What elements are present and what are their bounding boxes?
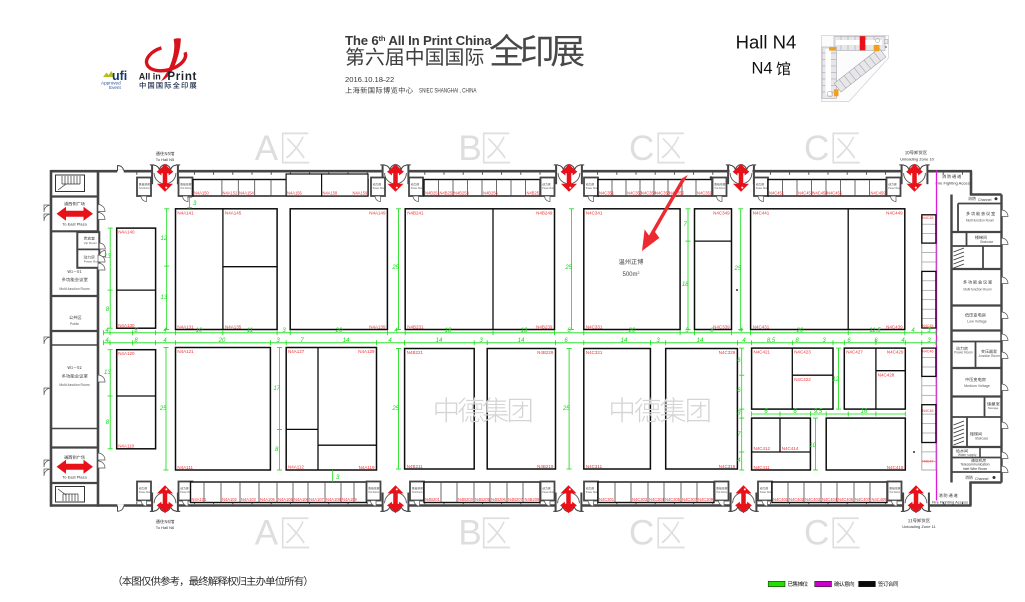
svg-text:N4B239: N4B239 bbox=[536, 324, 553, 329]
svg-text:N4C403: N4C403 bbox=[805, 497, 821, 502]
svg-text:Tick Room: Tick Room bbox=[714, 188, 725, 190]
svg-text:11.5: 11.5 bbox=[869, 328, 881, 334]
svg-text:N4C359: N4C359 bbox=[697, 191, 713, 196]
svg-text:13: 13 bbox=[104, 370, 111, 376]
svg-text:N4A152: N4A152 bbox=[223, 191, 239, 196]
svg-text:Multi-function Room: Multi-function Room bbox=[966, 219, 995, 223]
svg-text:N4A105: N4A105 bbox=[260, 497, 276, 502]
svg-text:Water supply: Water supply bbox=[958, 453, 977, 457]
svg-text:Power Room: Power Room bbox=[888, 187, 901, 190]
svg-text:N4C454: N4C454 bbox=[813, 191, 829, 196]
svg-text:A: A bbox=[255, 129, 279, 168]
svg-text:N4A121: N4A121 bbox=[177, 349, 194, 354]
svg-text:N4A140: N4A140 bbox=[118, 229, 135, 234]
svg-text:Fire Fighting Access: Fire Fighting Access bbox=[935, 181, 971, 186]
svg-text:N4C331: N4C331 bbox=[586, 324, 603, 329]
svg-text:6: 6 bbox=[737, 358, 741, 364]
svg-text:N4C46: N4C46 bbox=[922, 409, 933, 413]
svg-text:Power Room: Power Room bbox=[586, 187, 599, 190]
svg-text:Tick Room: Tick Room bbox=[368, 492, 379, 494]
svg-text:To Hall N6: To Hall N6 bbox=[156, 525, 175, 530]
svg-text:Inlet Wire Room: Inlet Wire Room bbox=[963, 467, 987, 471]
svg-text:N4B256: N4B256 bbox=[483, 191, 499, 196]
svg-text:All in: All in bbox=[139, 71, 161, 81]
svg-text:N4A103: N4A103 bbox=[241, 497, 257, 502]
svg-text:16: 16 bbox=[861, 409, 868, 415]
svg-text:N4B241: N4B241 bbox=[407, 210, 424, 215]
svg-text:Power Room: Power Room bbox=[586, 491, 599, 494]
svg-text:N4A145: N4A145 bbox=[225, 210, 242, 215]
svg-text:Staircase: Staircase bbox=[980, 240, 994, 244]
svg-text:N4B205: N4B205 bbox=[475, 497, 491, 502]
svg-text:Public: Public bbox=[70, 322, 79, 326]
svg-text:25: 25 bbox=[391, 265, 399, 271]
svg-text:N4A135: N4A135 bbox=[225, 324, 242, 329]
svg-text:3: 3 bbox=[336, 475, 340, 481]
svg-text:N4A149: N4A149 bbox=[369, 210, 386, 215]
svg-text:Tick Room: Tick Room bbox=[889, 492, 900, 494]
svg-text:2016.10.18: 2016.10.18 bbox=[345, 75, 383, 84]
svg-text:B: B bbox=[458, 513, 481, 552]
svg-text:25: 25 bbox=[734, 266, 742, 272]
svg-text:N4C45: N4C45 bbox=[922, 216, 933, 220]
svg-text:N4C402: N4C402 bbox=[789, 497, 805, 502]
svg-text:SNIEC SHANGHAI , CHINA: SNIEC SHANGHAI , CHINA bbox=[419, 87, 477, 94]
svg-text:Print: Print bbox=[167, 71, 197, 83]
svg-text:N4B206: N4B206 bbox=[491, 497, 507, 502]
svg-text:A: A bbox=[255, 513, 279, 552]
svg-text:N4A105: N4A105 bbox=[278, 497, 294, 502]
svg-text:13: 13 bbox=[521, 328, 528, 334]
svg-text:Power Room: Power Room bbox=[542, 187, 555, 190]
svg-text:N4A127: N4A127 bbox=[288, 349, 305, 354]
svg-text:6: 6 bbox=[737, 388, 741, 394]
svg-text:9.5: 9.5 bbox=[814, 409, 823, 415]
svg-text:C: C bbox=[629, 513, 654, 552]
svg-text:C: C bbox=[629, 129, 654, 168]
svg-text:N4C301: N4C301 bbox=[599, 497, 615, 502]
svg-text:13: 13 bbox=[161, 295, 168, 301]
svg-text:N4C423: N4C423 bbox=[794, 350, 811, 355]
svg-text:N4C459: N4C459 bbox=[871, 191, 887, 196]
svg-text:20: 20 bbox=[335, 328, 343, 334]
svg-text:N4C329: N4C329 bbox=[719, 350, 736, 355]
svg-text:N4C412: N4C412 bbox=[754, 446, 771, 451]
svg-text:N4C46: N4C46 bbox=[922, 349, 933, 353]
svg-text:Event: Event bbox=[109, 85, 121, 90]
svg-text:B: B bbox=[458, 129, 481, 168]
svg-text:N4C349: N4C349 bbox=[713, 210, 730, 215]
svg-text:To East Plaza: To East Plaza bbox=[62, 475, 87, 480]
svg-text:N4A111: N4A111 bbox=[177, 465, 193, 470]
svg-text:N4A108: N4A108 bbox=[326, 497, 342, 502]
svg-text:N4B231: N4B231 bbox=[407, 324, 424, 329]
svg-text:C: C bbox=[804, 129, 829, 168]
svg-text:8: 8 bbox=[275, 447, 279, 453]
svg-text:Staircase: Staircase bbox=[975, 437, 989, 441]
svg-text:Power Room: Power Room bbox=[760, 491, 773, 494]
svg-text:4: 4 bbox=[737, 458, 741, 464]
svg-text:N4C304: N4C304 bbox=[649, 497, 665, 502]
svg-text:20: 20 bbox=[628, 328, 636, 334]
svg-text:8.5: 8.5 bbox=[767, 338, 776, 344]
svg-text:N4A120: N4A120 bbox=[118, 351, 135, 356]
svg-text:N4C422: N4C422 bbox=[794, 377, 811, 382]
svg-text:20: 20 bbox=[218, 338, 226, 344]
svg-text:N4C321: N4C321 bbox=[586, 350, 603, 355]
svg-text:Tick Room: Tick Room bbox=[180, 188, 191, 190]
svg-text:N4C305: N4C305 bbox=[665, 497, 681, 502]
svg-text:Storage: Storage bbox=[988, 406, 999, 410]
svg-text:N4A119: N4A119 bbox=[359, 465, 375, 470]
svg-text:N4C453: N4C453 bbox=[798, 191, 814, 196]
svg-text:N4B211: N4B211 bbox=[407, 464, 423, 469]
svg-text:N4B219: N4B219 bbox=[537, 464, 554, 469]
svg-text:25: 25 bbox=[564, 265, 572, 271]
svg-text:Tick Room: Tick Room bbox=[716, 492, 727, 494]
svg-text:14: 14 bbox=[621, 338, 628, 344]
svg-text:N4B221: N4B221 bbox=[407, 350, 424, 355]
svg-text:N4C404: N4C404 bbox=[822, 497, 838, 502]
svg-text:17: 17 bbox=[273, 386, 280, 392]
svg-text:N4B229: N4B229 bbox=[537, 350, 554, 355]
svg-text:C: C bbox=[804, 513, 829, 552]
svg-text:Power Room: Power Room bbox=[139, 491, 152, 494]
svg-text:Power Room: Power Room bbox=[756, 187, 769, 190]
svg-text:N4C341: N4C341 bbox=[586, 210, 603, 215]
svg-text:N4: N4 bbox=[751, 60, 772, 78]
svg-text:N4A150: N4A150 bbox=[194, 191, 210, 196]
svg-text:N4A130: N4A130 bbox=[118, 323, 135, 328]
svg-text:N4B201: N4B201 bbox=[425, 497, 441, 502]
svg-text:14: 14 bbox=[436, 338, 443, 344]
svg-text:Channel: Channel bbox=[975, 477, 989, 481]
svg-text:N4A109: N4A109 bbox=[342, 497, 358, 502]
svg-text:Fire Fighting Access: Fire Fighting Access bbox=[932, 500, 968, 505]
svg-text:N4C339: N4C339 bbox=[713, 324, 730, 329]
svg-text:14: 14 bbox=[697, 338, 704, 344]
svg-text:N4A110: N4A110 bbox=[118, 444, 134, 449]
svg-text:N4C428: N4C428 bbox=[878, 373, 895, 378]
svg-text:N4C311: N4C311 bbox=[586, 464, 603, 469]
svg-text:N4C401: N4C401 bbox=[773, 497, 789, 502]
svg-text:18: 18 bbox=[682, 282, 689, 288]
svg-text:N4A131: N4A131 bbox=[177, 324, 194, 329]
svg-text:N4C307: N4C307 bbox=[682, 497, 698, 502]
svg-text:N4C406: N4C406 bbox=[838, 497, 854, 502]
svg-text:The 6th All In Print China: The 6th All In Print China bbox=[345, 33, 492, 48]
svg-text:N4C419: N4C419 bbox=[887, 465, 904, 470]
svg-text:N4C303: N4C303 bbox=[632, 497, 648, 502]
svg-text:25: 25 bbox=[391, 406, 399, 412]
svg-text:7: 7 bbox=[684, 222, 688, 228]
svg-text:N4C441: N4C441 bbox=[753, 210, 770, 215]
svg-text:Multi-function Room: Multi-function Room bbox=[59, 383, 89, 387]
svg-text:Power Room: Power Room bbox=[373, 187, 386, 190]
svg-text:N4A158: N4A158 bbox=[323, 191, 339, 196]
svg-text:N4C414: N4C414 bbox=[782, 446, 799, 451]
svg-text:N4B207: N4B207 bbox=[508, 497, 524, 502]
svg-text:Power Room: Power Room bbox=[411, 187, 424, 190]
svg-text:N4B249: N4B249 bbox=[536, 210, 553, 215]
svg-text:18: 18 bbox=[445, 328, 452, 334]
svg-text:8: 8 bbox=[106, 420, 110, 426]
svg-text:Hall N4: Hall N4 bbox=[736, 32, 797, 53]
svg-text:N4C455: N4C455 bbox=[827, 191, 843, 196]
svg-text:Power Room: Power Room bbox=[542, 491, 555, 494]
svg-text:N4C449: N4C449 bbox=[886, 210, 903, 215]
svg-text:N4A107: N4A107 bbox=[309, 497, 325, 502]
svg-text:500m2: 500m2 bbox=[622, 271, 639, 278]
svg-text:N4C409: N4C409 bbox=[872, 497, 888, 502]
svg-text:Low Voltage: Low Voltage bbox=[967, 320, 987, 324]
svg-text:N4C319: N4C319 bbox=[719, 464, 736, 469]
svg-text:N4A159: N4A159 bbox=[353, 191, 369, 196]
svg-text:N4A112: N4A112 bbox=[288, 465, 304, 470]
svg-text:N4A129: N4A129 bbox=[358, 349, 375, 354]
svg-text:N4C407: N4C407 bbox=[855, 497, 871, 502]
svg-text:Vip Room: Vip Room bbox=[84, 241, 98, 245]
svg-text:20: 20 bbox=[796, 328, 804, 334]
svg-text:Channel: Channel bbox=[978, 198, 992, 202]
svg-text:13: 13 bbox=[104, 254, 111, 260]
svg-text:N4A141: N4A141 bbox=[177, 210, 194, 215]
svg-text:3: 3 bbox=[193, 201, 197, 207]
svg-text:N4C427: N4C427 bbox=[846, 350, 863, 355]
svg-text:N4B209: N4B209 bbox=[525, 497, 541, 502]
svg-text:Power Room: Power Room bbox=[954, 351, 973, 355]
svg-text:10: 10 bbox=[196, 328, 203, 334]
svg-text:N4C451: N4C451 bbox=[769, 191, 785, 196]
svg-text:N4A139: N4A139 bbox=[369, 324, 386, 329]
svg-text:To Hall N5: To Hall N5 bbox=[156, 157, 175, 162]
svg-text:N4B252: N4B252 bbox=[440, 191, 456, 196]
svg-text:Tick Room: Tick Room bbox=[139, 188, 150, 190]
svg-text:N4B203: N4B203 bbox=[458, 497, 474, 502]
svg-text:Unloading Zone 11: Unloading Zone 11 bbox=[902, 524, 936, 529]
svg-text:25: 25 bbox=[562, 406, 570, 412]
svg-text:25: 25 bbox=[159, 406, 167, 412]
svg-text:11: 11 bbox=[247, 328, 253, 334]
svg-text:12: 12 bbox=[832, 377, 839, 383]
svg-text:N4A154: N4A154 bbox=[239, 191, 255, 196]
svg-text:10: 10 bbox=[809, 443, 816, 449]
svg-text:N4B251: N4B251 bbox=[425, 191, 441, 196]
svg-text:Junction Room: Junction Room bbox=[978, 354, 1000, 358]
svg-text:N4C351: N4C351 bbox=[599, 191, 615, 196]
svg-text:–22: –22 bbox=[382, 75, 395, 84]
svg-text:N4A156: N4A156 bbox=[287, 191, 303, 196]
svg-text:7: 7 bbox=[737, 432, 741, 438]
svg-text:N4C421: N4C421 bbox=[754, 350, 771, 355]
svg-text:14: 14 bbox=[343, 338, 350, 344]
svg-text:N4A106: N4A106 bbox=[294, 497, 310, 502]
svg-text:N4C439: N4C439 bbox=[886, 324, 903, 329]
svg-text:Medium Voltage: Medium Voltage bbox=[964, 384, 990, 388]
svg-text:N4C309: N4C309 bbox=[698, 497, 714, 502]
svg-text:Unloading Zone 10: Unloading Zone 10 bbox=[900, 157, 935, 162]
svg-text:8: 8 bbox=[106, 307, 110, 313]
svg-text:N4B253: N4B253 bbox=[454, 191, 470, 196]
svg-text:N4C431: N4C431 bbox=[753, 324, 770, 329]
svg-text:12: 12 bbox=[161, 236, 168, 242]
svg-text:Multi-function Room: Multi-function Room bbox=[59, 287, 89, 291]
svg-text:N4C47: N4C47 bbox=[922, 460, 933, 464]
svg-text:Tick Room: Tick Room bbox=[412, 492, 423, 494]
svg-text:N4C411: N4C411 bbox=[754, 465, 771, 470]
svg-text:N4C429: N4C429 bbox=[887, 350, 904, 355]
svg-text:3: 3 bbox=[737, 411, 741, 417]
svg-text:N4A101: N4A101 bbox=[192, 497, 208, 502]
svg-text:N4A102: N4A102 bbox=[222, 497, 238, 502]
svg-text:Multi-function Room: Multi-function Room bbox=[963, 288, 992, 292]
svg-text:To East Plaza: To East Plaza bbox=[62, 222, 87, 227]
svg-text:14: 14 bbox=[518, 338, 525, 344]
